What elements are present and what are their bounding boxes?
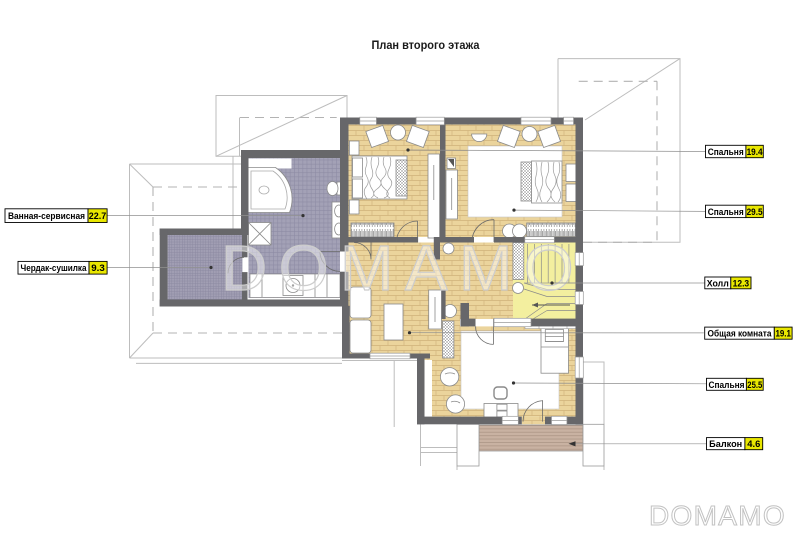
svg-text:Общая комната: Общая комната [708, 329, 773, 339]
svg-text:План второго этажа: План второго этажа [372, 38, 480, 52]
svg-text:Холл: Холл [707, 278, 729, 288]
svg-text:9.3: 9.3 [91, 263, 105, 273]
svg-text:DOMAMO: DOMAMO [649, 500, 786, 531]
svg-text:Ванная-сервисная: Ванная-сервисная [8, 211, 85, 221]
svg-text:DOMAMO: DOMAMO [221, 232, 585, 304]
svg-text:Спальня: Спальня [709, 380, 745, 390]
svg-text:Спальня: Спальня [708, 207, 744, 217]
svg-text:12.3: 12.3 [733, 278, 750, 288]
svg-text:Чердак-сушилка: Чердак-сушилка [21, 263, 88, 273]
svg-text:29.5: 29.5 [747, 207, 763, 217]
svg-text:19.4: 19.4 [747, 147, 763, 157]
svg-text:22.7: 22.7 [89, 211, 107, 221]
svg-text:25.5: 25.5 [747, 380, 762, 390]
svg-text:4.6: 4.6 [747, 439, 760, 449]
svg-text:19.1: 19.1 [775, 329, 791, 339]
svg-text:Балкон: Балкон [709, 439, 742, 449]
svg-text:Спальня: Спальня [708, 147, 744, 157]
